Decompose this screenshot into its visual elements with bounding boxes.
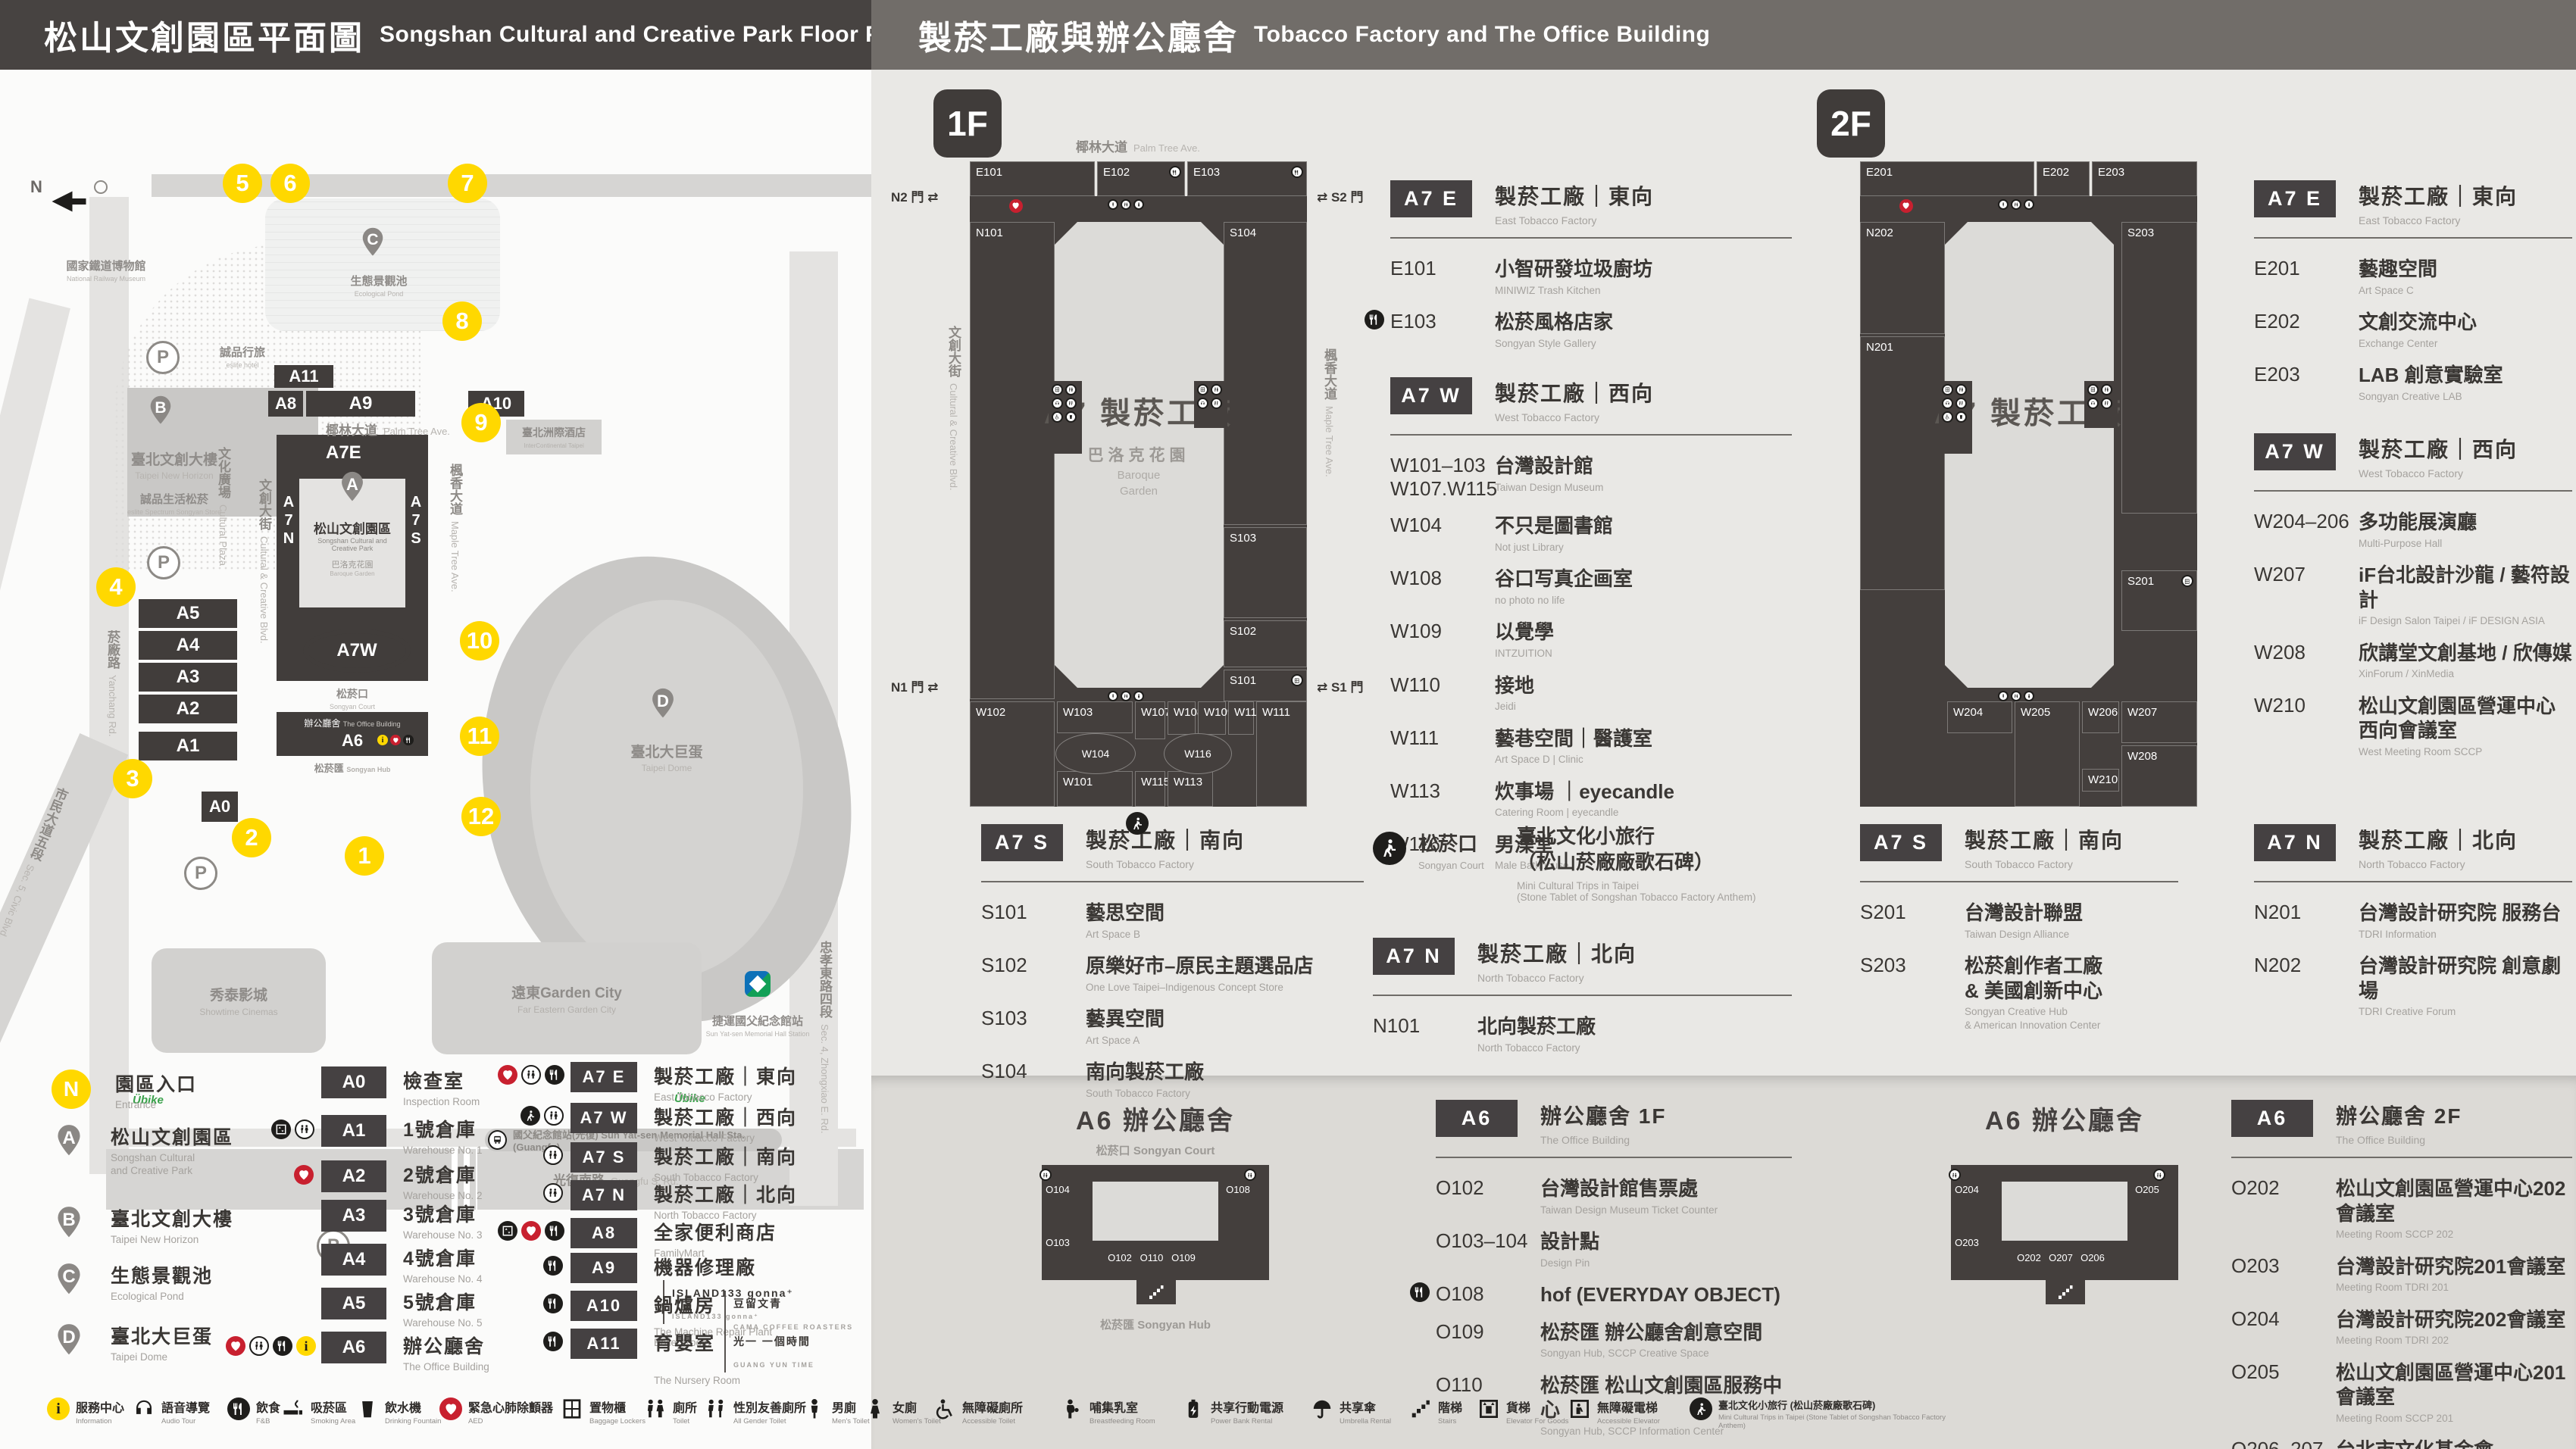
item-name: LAB 創意實驗室Songyan Creative LAB: [2359, 363, 2503, 403]
section-A6: A6辦公廳舍 1FThe Office BuildingO102台灣設計館售票處…: [1436, 1100, 1792, 1449]
room-icon: [1169, 165, 1181, 178]
fnb-icon: [545, 1065, 564, 1085]
legend-point-B: B臺北文創大樓Taipei New Horizon: [52, 1204, 309, 1247]
aed-icon: [294, 1165, 314, 1185]
section-badge: A7 E: [1390, 180, 1472, 217]
map-pin-A: A: [336, 470, 369, 509]
item-code: O206–207: [2231, 1438, 2336, 1449]
section-A7E: A7 E製菸工廠｜東向East Tobacco FactoryE101小智研發垃…: [1390, 180, 1792, 363]
section-badge: A7 W: [2254, 433, 2336, 470]
right-title-zh: 製菸工廠與辦公廳舍: [918, 11, 1239, 59]
list-item: S104南向製菸工廠South Tobacco Factory: [981, 1060, 1364, 1100]
legend-icons: i: [226, 1336, 316, 1356]
lockers-icon: [1942, 384, 1953, 395]
plan-room-W207: W207: [2121, 701, 2197, 743]
plan-room-W204: W204: [1947, 701, 2012, 733]
item-code: O203: [2231, 1254, 2336, 1294]
plan-room-S203: S203: [2121, 222, 2197, 514]
item-name: 藝趣空間Art Space C: [2359, 257, 2437, 297]
right-header: 製菸工廠與辦公廳舍 Tobacco Factory and The Office…: [871, 0, 2576, 70]
item-name: 松菸匯 辦公廳舍創意空間Songyan Hub, SCCP Creative S…: [1540, 1320, 1762, 1360]
item-code: S203: [1860, 954, 1965, 1032]
list-item: O108hof (EVERYDAY OBJECT): [1436, 1282, 1792, 1307]
lockers-icon: [1291, 674, 1303, 686]
legend-icons: [498, 1065, 564, 1085]
iconbar-glyph: [644, 1397, 667, 1420]
stairs-wrap: [2056, 1283, 2074, 1301]
audio-icon: [1052, 398, 1063, 409]
men-icon: [1998, 691, 2009, 701]
item-name: 台灣設計研究院202會議室Meeting Room TDRI 202: [2336, 1307, 2565, 1348]
iconbar-glyph: [133, 1397, 155, 1420]
iconbar-glyph: [1311, 1397, 1333, 1420]
plan-room-N101: N101: [970, 222, 1055, 699]
toilet-icon: [2101, 384, 2112, 395]
entrance-number-9: 9: [461, 403, 501, 442]
legend-text: 檢查室Inspection Room: [403, 1066, 480, 1109]
section-header: A7 S製菸工廠｜南向South Tobacco Factory: [981, 824, 1364, 870]
fnb-icon: [1410, 1282, 1430, 1302]
iconbar-nursing: 哺集乳室Breastfeeding Room: [1061, 1397, 1155, 1426]
plan-room-E101: E101: [970, 161, 1095, 196]
iconbar-glyph: [1568, 1397, 1591, 1420]
plan-icon-cluster: [1049, 381, 1082, 454]
legend-icons: [498, 1221, 564, 1241]
legend-A2: A22號倉庫Warehouse No. 2: [321, 1160, 571, 1203]
list-item: O205松山文創園區營運中心201會議室Meeting Room SCCP 20…: [2231, 1360, 2572, 1426]
section-title: 製菸工廠｜西向West Tobacco Factory: [1495, 377, 1654, 423]
toilet-icon: [543, 1183, 563, 1203]
legend-A7N: A7 N製菸工廠｜北向North Tobacco Factory: [571, 1180, 874, 1223]
list-item: E203LAB 創意實驗室Songyan Creative LAB: [2254, 363, 2572, 403]
section-divider: [2231, 1157, 2572, 1158]
room-icon: [2181, 574, 2193, 587]
plan-gate-label: ⇄ S2 門: [1317, 186, 1363, 205]
list-item: O202松山文創園區營運中心202會議室Meeting Room SCCP 20…: [2231, 1176, 2572, 1241]
legend-icons: [543, 1145, 563, 1165]
women-icon: [1133, 199, 1144, 210]
map-building-A2: A2: [139, 695, 237, 723]
entrance-number-6: 6: [270, 164, 310, 203]
map-pin-D: D: [646, 686, 680, 726]
list-item: S102原樂好市–原民主題選品店One Love Taipei–Indigeno…: [981, 954, 1364, 994]
iconbar-trip: 臺北文化小旅行 (松山菸廠廠歌石碑)Mini Cultural Trips in…: [1690, 1397, 1946, 1430]
plan-room-W210: W210: [2082, 769, 2119, 792]
item-code: O202: [2231, 1176, 2336, 1241]
list-item: E103松菸風格店家Songyan Style Gallery: [1390, 310, 1792, 350]
plan-room-W104: W104: [1055, 733, 1136, 774]
iconbar-text: 無障礙廁所Accessible Toilet: [962, 1397, 1023, 1426]
iconbar-allgender: 性別友善廁所All Gender Toilet: [705, 1397, 806, 1426]
legend-icons: [543, 1332, 563, 1351]
legend-point-text: 園區入口Entrance: [115, 1070, 197, 1112]
a6-plan-stub: [2046, 1280, 2085, 1304]
item-code: S104: [981, 1060, 1086, 1100]
men-icon: [1998, 199, 2009, 210]
map-building-A0: A0: [202, 792, 238, 822]
item-name: 以覺學INTZUITION: [1495, 620, 1554, 660]
legend-pin-C: C: [52, 1261, 86, 1304]
section-badge: A6: [1436, 1100, 1518, 1137]
section-header: A7 N製菸工廠｜北向North Tobacco Factory: [2254, 824, 2572, 870]
plan-room-W108: W108: [1168, 701, 1196, 735]
plan-room-W110: W110: [1228, 701, 1254, 735]
aed-icon: [498, 1065, 517, 1085]
item-name: 台灣設計聯盟Taiwan Design Alliance: [1965, 901, 2083, 941]
item-code: S103: [981, 1007, 1086, 1047]
item-code: E201: [2254, 257, 2359, 297]
allgender-icon: [2101, 398, 2112, 409]
legend-badge-A5: A5: [321, 1288, 386, 1319]
compass-north: N: [30, 176, 121, 198]
map-label-A7E: A7E: [326, 442, 386, 462]
item-name: 北向製菸工廠North Tobacco Factory: [1477, 1014, 1596, 1054]
iconbar-text: 性別友善廁所All Gender Toilet: [733, 1397, 806, 1426]
legend-point-text: 臺北大巨蛋Taipei Dome: [111, 1322, 213, 1364]
plan-icon-cluster: [2084, 381, 2118, 428]
legend-icons: [271, 1120, 314, 1139]
plan-room-W111: W111: [1256, 701, 1307, 807]
plan-gate-label: ⇄ S1 門: [1317, 676, 1363, 695]
item-name: 小智研發垃圾廚坊MINIWIZ Trash Kitchen: [1495, 257, 1652, 297]
iconbar-toilet: 廁所Toilet: [644, 1397, 697, 1426]
plan-room-W101: W101: [1057, 771, 1133, 807]
list-item: E101小智研發垃圾廚坊MINIWIZ Trash Kitchen: [1390, 257, 1792, 297]
plan-room-N201: N201: [1860, 336, 1945, 590]
iconbar-text: 飲水機Drinking Fountain: [385, 1397, 441, 1426]
showtime-cinemas-box: 秀泰影城Showtime Cinemas: [152, 948, 326, 1053]
room-icon: [1291, 165, 1303, 178]
iconbar-glyph: [705, 1397, 727, 1420]
a6-hub-label: 松菸匯 Songyan Hub: [1100, 1316, 1211, 1332]
section-badge: A7 W: [1390, 377, 1472, 414]
legend-badge: A11: [571, 1329, 637, 1359]
plan-2f-courtyard: [1945, 222, 2114, 688]
legend-A5: A55號倉庫Warehouse No. 5: [321, 1288, 571, 1330]
toilet-icon: [2011, 199, 2021, 210]
a6-room-O205: O205: [2126, 1184, 2168, 1195]
iconbar-stairs: 階梯Stairs: [1409, 1397, 1462, 1426]
legend-point-text: 生態景觀池Ecological Pond: [111, 1261, 213, 1304]
toilet-icon: [1121, 199, 1131, 210]
legend-badge: A7 E: [571, 1062, 637, 1092]
section-divider: [1436, 1157, 1792, 1158]
item-code: W207: [2254, 563, 2359, 628]
iconbar-info: i服務中心Information: [47, 1397, 124, 1426]
fnb-icon: [1365, 310, 1384, 329]
a6-court-label: 松菸口 Songyan Court: [1096, 1142, 1215, 1158]
plan-room-W107: W107: [1135, 701, 1165, 739]
legend-badge: A7 N: [571, 1180, 637, 1210]
plan-icon-cluster: [1939, 381, 1972, 454]
a6-room-O206: O206: [2071, 1252, 2114, 1263]
legend-icons: [521, 1106, 564, 1126]
parking-icon: P: [146, 341, 180, 374]
plan-room-E103: E103: [1187, 161, 1307, 196]
a6-plan-title-2f: A6 辦公廳舍: [1985, 1100, 2144, 1137]
iconbar-accelevator: 無障礙電梯Accessible Elevator: [1568, 1397, 1660, 1426]
list-item: S203松菸創作者工廠& 美國創新中心Songyan Creative Hub&…: [1860, 954, 2178, 1032]
item-name: 南向製菸工廠South Tobacco Factory: [1086, 1060, 1204, 1100]
iconbar-women: 女廁Women's Toilet: [864, 1397, 941, 1426]
legend-text: 5號倉庫Warehouse No. 5: [403, 1288, 483, 1330]
legend-pin-D: D: [52, 1322, 86, 1364]
section-header: A7 N製菸工廠｜北向North Tobacco Factory: [1373, 938, 1792, 984]
item-code: E101: [1390, 257, 1495, 297]
iconbar-glyph: [1477, 1397, 1500, 1420]
legend-point-text: 臺北文創大樓Taipei New Horizon: [111, 1204, 233, 1247]
a6-room-O104: O104: [1036, 1184, 1079, 1195]
item-code: W204–206: [2254, 510, 2359, 550]
list-item: W113炊事場 ｜eyecandleCatering Room | eyecan…: [1390, 779, 1792, 820]
map-building-A9: A9: [306, 391, 415, 417]
toilet-icon: [2011, 691, 2021, 701]
map-pin-B: B: [145, 394, 177, 432]
place-label: 生態景觀池Ecological Pond: [318, 273, 439, 303]
parking-icon: P: [184, 857, 217, 890]
map-building-A4: A4: [139, 631, 237, 660]
list-item: W108谷口写真企画室no photo no life: [1390, 567, 1792, 607]
legend-point-C: C生態景觀池Ecological Pond: [52, 1261, 309, 1304]
item-code: W101–103W107.W115: [1390, 454, 1495, 501]
plan-room-W205: W205: [2015, 701, 2080, 807]
songyan-court-name: 松菸口Songyan Court: [1418, 829, 1509, 897]
allgender-icon: [1211, 398, 1222, 409]
item-code: S101: [981, 901, 1086, 941]
section-header: A6辦公廳舍 2FThe Office Building: [2231, 1100, 2572, 1146]
list-item: W110接地Jeidi: [1390, 673, 1792, 714]
iconbar-glyph: [933, 1397, 956, 1420]
legend-badge-A3: A3: [321, 1200, 386, 1232]
allgender-icon: [1065, 398, 1077, 409]
iconbar-text: 飲食F&B: [256, 1397, 280, 1426]
entrance-number-4: 4: [96, 567, 136, 607]
street-label: 楓香大道Maple Tree Ave.: [445, 464, 464, 592]
plan-room-W103: W103: [1057, 701, 1133, 733]
elevator-icon: [498, 1221, 517, 1241]
plan-room-W109: W109: [1198, 701, 1226, 735]
iconbar-text: 廁所Toilet: [673, 1397, 697, 1426]
iconbar-text: 語音導覽Audio Tour: [161, 1397, 210, 1426]
plan-room-N202: N202: [1860, 222, 1945, 334]
item-name: hof (EVERYDAY OBJECT): [1540, 1282, 1780, 1307]
hotel-box: 臺北洲際酒店InterContinental Taipei: [506, 420, 602, 454]
item-code: S201: [1860, 901, 1965, 941]
left-header: 松山文創園區平面圖 Songshan Cultural and Creative…: [0, 0, 915, 70]
fnb-icon: [1169, 166, 1181, 178]
iconbar-text: 階梯Stairs: [1438, 1397, 1462, 1426]
iconbar-text: 臺北文化小旅行 (松山菸廠廠歌石碑)Mini Cultural Trips in…: [1718, 1397, 1946, 1430]
trip-icon: [1126, 812, 1149, 835]
toilet-icon: [249, 1336, 269, 1356]
place-label: 誠品生活松菸eslite Spectrum Songyan Store: [114, 491, 235, 521]
stairs-wrap: [1147, 1283, 1165, 1301]
map-pin-C: C: [357, 226, 389, 264]
item-code: W208: [2254, 641, 2359, 681]
iconbar-text: 吸菸區Smoking Area: [311, 1397, 355, 1426]
fnb-icon: [227, 1397, 250, 1420]
section-title: 製菸工廠｜南向South Tobacco Factory: [1086, 824, 1245, 870]
list-item: N201台灣設計研究院 服務台TDRI Information: [2254, 901, 2572, 941]
garden-city-box: 遠東Garden CityFar Eastern Garden City: [432, 942, 702, 1054]
place-label: 誠品行旅eslite hotel: [182, 344, 303, 374]
place-label: 臺北文創大樓Taipei New Horizon: [114, 448, 235, 479]
legend-A7E: A7 E製菸工廠｜東向East Tobacco Factory: [571, 1062, 874, 1104]
entrance-number-12: 12: [461, 797, 501, 836]
entrance-number-5: 5: [223, 164, 262, 203]
legend-point-N: N園區入口Entrance: [52, 1070, 309, 1112]
item-name: 松山文創園區營運中心西向會議室West Meeting Room SCCP: [2359, 694, 2556, 759]
plan-room-E203: E203: [2092, 161, 2197, 196]
iconbar-aed: 緊急心肺除顫器AED: [439, 1397, 553, 1426]
toilet-icon: [295, 1120, 314, 1139]
legend-text: 育嬰室光一 一個時間GUANG YUN TIMEThe Nursery Room: [654, 1329, 814, 1388]
elevator-icon: [271, 1120, 291, 1139]
section-title: 製菸工廠｜東向East Tobacco Factory: [1495, 180, 1654, 226]
legend-badge-A0: A0: [321, 1066, 386, 1098]
songyan-court-block: 松菸口Songyan Court臺北文化小旅行（松山菸廠廠歌石碑）Mini Cu…: [1373, 824, 1792, 938]
toilet-icon: [1065, 384, 1077, 395]
iconbar-text: 服務中心Information: [76, 1397, 124, 1426]
plan-room-W113: W113: [1168, 771, 1213, 807]
legend-badge: A9: [571, 1253, 637, 1283]
section-divider: [2254, 237, 2572, 239]
iconbar-glyph: [864, 1397, 886, 1420]
plan-room-E201: E201: [1860, 161, 2034, 196]
item-code: W108: [1390, 567, 1495, 607]
section-divider: [2254, 881, 2572, 882]
item-code: W113: [1390, 779, 1495, 820]
a6-room-O204: O204: [1946, 1184, 1988, 1195]
iconbar-men: 男廁Men's Toilet: [803, 1397, 870, 1426]
item-name: 欣講堂文創基地 / 欣傳媒XinForum / XinMedia: [2359, 641, 2572, 681]
toilet-icon: [1121, 691, 1131, 701]
a6-plan-2f-court: [2002, 1182, 2127, 1241]
item-name: 藝巷空間｜醫護室Art Space D | Clinic: [1495, 726, 1652, 767]
section-title: 製菸工廠｜北向North Tobacco Factory: [1477, 938, 1637, 984]
info-icon: i: [47, 1397, 70, 1420]
iconbar-accessible: 無障礙廁所Accessible Toilet: [933, 1397, 1023, 1426]
entrance-number-11: 11: [460, 717, 499, 756]
section-badge: A7 E: [2254, 180, 2336, 217]
iconbar-glyph: [282, 1397, 305, 1420]
list-item: S101藝思空間Art Space B: [981, 901, 1364, 941]
iconbar-audio: 語音導覽Audio Tour: [133, 1397, 210, 1426]
list-item: O103–104設計點Design Pin: [1436, 1229, 1792, 1269]
legend-text: 1號倉庫Warehouse No. 1: [403, 1115, 483, 1157]
room-icon: [1291, 673, 1303, 686]
toilet-icon: [1211, 384, 1222, 395]
legend-icons: [294, 1165, 314, 1185]
item-name: 不只是圖書館Not just Library: [1495, 514, 1613, 554]
map-songyan-court: 松菸口Songyan Court: [303, 686, 402, 709]
aed-icon: [521, 1221, 541, 1241]
list-item: W101–103W107.W115台灣設計館Taiwan Design Muse…: [1390, 454, 1792, 501]
legend-icons: [543, 1256, 563, 1276]
plan-room-W102: W102: [970, 701, 1055, 807]
item-name: 台灣設計研究院 創意劇場TDRI Creative Forum: [2359, 954, 2572, 1019]
item-name: 台灣設計研究院201會議室Meeting Room TDRI 201: [2336, 1254, 2565, 1294]
legend-text: 製菸工廠｜西向West Tobacco Factory: [654, 1103, 797, 1145]
map-building-A1: A1: [139, 732, 237, 760]
plan-street-top: 椰林大道Palm Tree Ave.: [1076, 136, 1200, 155]
item-name: 藝思空間Art Space B: [1086, 901, 1165, 941]
toilet-icon: [543, 1145, 563, 1165]
floor-1f-badge: 1F: [933, 89, 1002, 158]
list-item: E202文創交流中心Exchange Center: [2254, 310, 2572, 350]
plan-gate-cluster: [1995, 196, 2063, 219]
list-item: O206–207台北市文化基金會松山文創園區營運中心Taipei Culture…: [2231, 1438, 2572, 1449]
section-title: 製菸工廠｜南向South Tobacco Factory: [1965, 824, 2124, 870]
list-item: W207iF台北設計沙龍 / 藝符設計iF Design Salon Taipe…: [2254, 563, 2572, 628]
list-item: W208欣講堂文創基地 / 欣傳媒XinForum / XinMedia: [2254, 641, 2572, 681]
section-title: 製菸工廠｜西向West Tobacco Factory: [2359, 433, 2518, 479]
map-label-A7W: A7W: [303, 629, 411, 673]
list-item: W111藝巷空間｜醫護室Art Space D | Clinic: [1390, 726, 1792, 767]
fnb-icon: [403, 735, 414, 745]
map-building-A5: A5: [139, 599, 237, 628]
section-A7S: A7 S製菸工廠｜南向South Tobacco FactoryS101藝思空間…: [981, 824, 1364, 1113]
plan-room-W116: W116: [1164, 733, 1232, 774]
section-badge: A7 S: [981, 824, 1063, 861]
iconbar-glyph: [356, 1397, 379, 1420]
plan-room-S101: S101: [1224, 670, 1307, 701]
entrance-number-1: 1: [345, 836, 384, 876]
a6-room-O103: O103: [1036, 1237, 1079, 1248]
women-icon: [2024, 691, 2034, 701]
floor-2f-badge: 2F: [1817, 89, 1885, 158]
list-item: W109以覺學INTZUITION: [1390, 620, 1792, 660]
a6-plan-stub: [1136, 1280, 1176, 1304]
list-item: E201藝趣空間Art Space C: [2254, 257, 2572, 297]
list-item: O109松菸匯 辦公廳舍創意空間Songyan Hub, SCCP Creati…: [1436, 1320, 1792, 1360]
fountain-icon: [1065, 411, 1077, 423]
item-name: 設計點Design Pin: [1540, 1229, 1599, 1269]
iconbar-power: 共享行動電源Power Bank Rental: [1182, 1397, 1283, 1426]
plan-icon-cluster: [1194, 381, 1227, 428]
item-name: 接地Jeidi: [1495, 673, 1534, 714]
entrance-number-7: 7: [448, 164, 487, 203]
legend-icons: [543, 1183, 563, 1203]
item-code: O103–104: [1436, 1229, 1540, 1269]
a6-plan-title-1f: A6 辦公廳舍: [1076, 1100, 1235, 1137]
list-item: W104不只是圖書館Not just Library: [1390, 514, 1792, 554]
street-label: 文創大街Cultural & Creative Blvd.: [255, 479, 274, 644]
iconbar-smoking: 吸菸區Smoking Area: [282, 1397, 355, 1426]
iconbar-fountain: 飲水機Drinking Fountain: [356, 1397, 441, 1426]
fnb-icon: [1291, 166, 1303, 178]
list-item: W204–206多功能展演廳Multi-Purpose Hall: [2254, 510, 2572, 550]
list-item: S201台灣設計聯盟Taiwan Design Alliance: [1860, 901, 2178, 941]
legend-pin-B: B: [52, 1204, 86, 1247]
men-icon: [1108, 199, 1118, 210]
legend-badge: A7 W: [571, 1103, 637, 1133]
lockers-icon: [1052, 384, 1063, 395]
item-name: 台灣設計館Taiwan Design Museum: [1495, 454, 1603, 501]
iconbar-lockers: 置物櫃Baggage Lockers: [561, 1397, 646, 1426]
legend-badge-A4: A4: [321, 1244, 386, 1276]
legend-badge: A8: [571, 1218, 637, 1248]
iconbar-text: 共享行動電源Power Bank Rental: [1211, 1397, 1283, 1426]
iconbar-glyph: [803, 1397, 826, 1420]
plan-gate-label: N2 門 ⇄: [891, 186, 938, 205]
section-divider: [981, 881, 1364, 882]
section-A7W: A7 W製菸工廠｜西向West Tobacco FactoryW204–206多…: [2254, 433, 2572, 771]
section-title: 製菸工廠｜東向East Tobacco Factory: [2359, 180, 2518, 226]
legend-A4: A44號倉庫Warehouse No. 4: [321, 1244, 571, 1286]
a6-room-O108: O108: [1217, 1184, 1259, 1195]
lockers-icon: [2087, 384, 2099, 395]
